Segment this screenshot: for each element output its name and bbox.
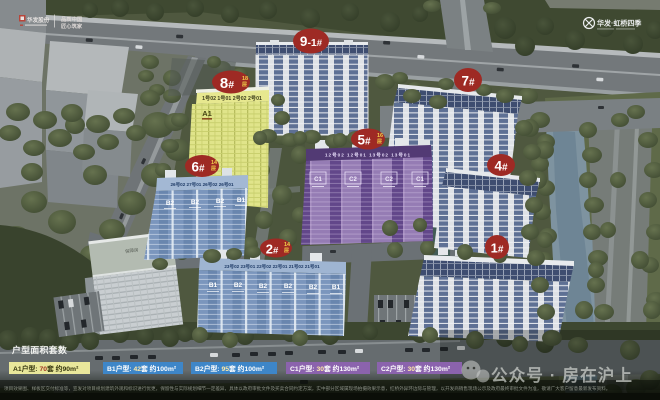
svg-text:C1: C1 <box>416 177 424 183</box>
svg-text:华发股份: 华发股份 <box>27 16 50 24</box>
svg-text:匠心筑家: 匠心筑家 <box>61 22 83 30</box>
svg-text:B2: B2 <box>166 200 175 207</box>
svg-text:B1: B1 <box>332 284 341 291</box>
svg-text:1号02 1号01 2号02 2号01: 1号02 1号01 2号02 2号01 <box>202 94 262 102</box>
svg-text:12号02 12号01 13号02 13号01: 12号02 12号01 13号02 13号01 <box>325 152 411 159</box>
svg-text:A1: A1 <box>202 109 212 118</box>
svg-text:B2: B2 <box>259 283 268 290</box>
svg-text:层: 层 <box>376 138 382 145</box>
svg-text:华发·虹桥四季: 华发·虹桥四季 <box>597 19 642 28</box>
svg-text:B2: B2 <box>216 198 225 205</box>
svg-text:品质中国: 品质中国 <box>61 15 82 23</box>
svg-text:B1户型: 42套 约100m²: B1户型: 42套 约100m² <box>107 364 177 373</box>
svg-text:B1: B1 <box>209 282 218 289</box>
svg-text:B1: B1 <box>237 197 246 204</box>
svg-text:B2: B2 <box>234 282 243 289</box>
svg-text:C1: C1 <box>314 177 322 183</box>
svg-text:26号02 27号01 26号02 26号01: 26号02 27号01 26号02 26号01 <box>170 181 234 188</box>
svg-text:层: 层 <box>210 165 216 172</box>
svg-text:B2: B2 <box>284 283 293 290</box>
svg-text:层: 层 <box>283 247 289 254</box>
svg-text:A1户型: 70套 约90m²: A1户型: 70套 约90m² <box>13 364 79 373</box>
svg-text:户型面积套数: 户型面积套数 <box>12 344 67 355</box>
svg-text:B2: B2 <box>309 284 318 291</box>
svg-text:公众号 · 房在沪上: 公众号 · 房在沪上 <box>491 365 633 385</box>
svg-text:层: 层 <box>241 81 247 88</box>
svg-text:C2: C2 <box>349 177 357 183</box>
svg-text:C2户型: 30套 约130m²: C2户型: 30套 约130m² <box>381 364 451 373</box>
svg-text:B2: B2 <box>191 199 200 206</box>
svg-text:B2户型: 95套 约100m²: B2户型: 95套 约100m² <box>195 364 265 373</box>
svg-text:项目效果图、样板区交付标准等，宣发对项目规划建筑外观和标识进: 项目效果图、样板区交付标准等，宣发对项目规划建筑外观和标识进行优更，保留性与实际… <box>4 385 610 392</box>
svg-text:23号02 23号01 22号02 22号01 21号02: 23号02 23号01 22号02 22号01 21号02 21号01 <box>224 263 320 270</box>
svg-text:C2: C2 <box>385 177 393 183</box>
svg-text:C1户型: 30套 约130m²: C1户型: 30套 约130m² <box>290 364 360 373</box>
